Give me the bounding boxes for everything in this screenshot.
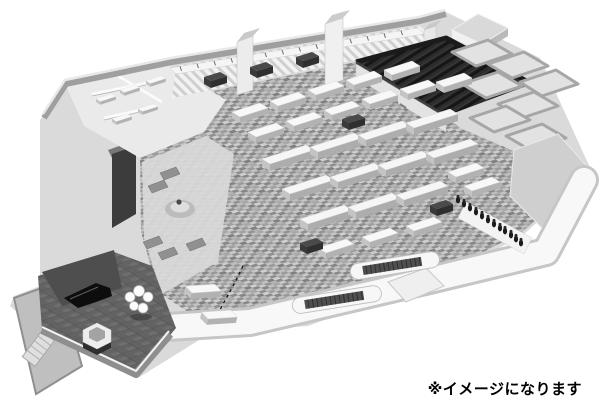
floor-plan-render: ※イメージになります (0, 0, 600, 414)
caption-text: ※イメージになります (428, 378, 582, 399)
plant-icon (176, 199, 181, 204)
isometric-store-scene (0, 0, 600, 414)
